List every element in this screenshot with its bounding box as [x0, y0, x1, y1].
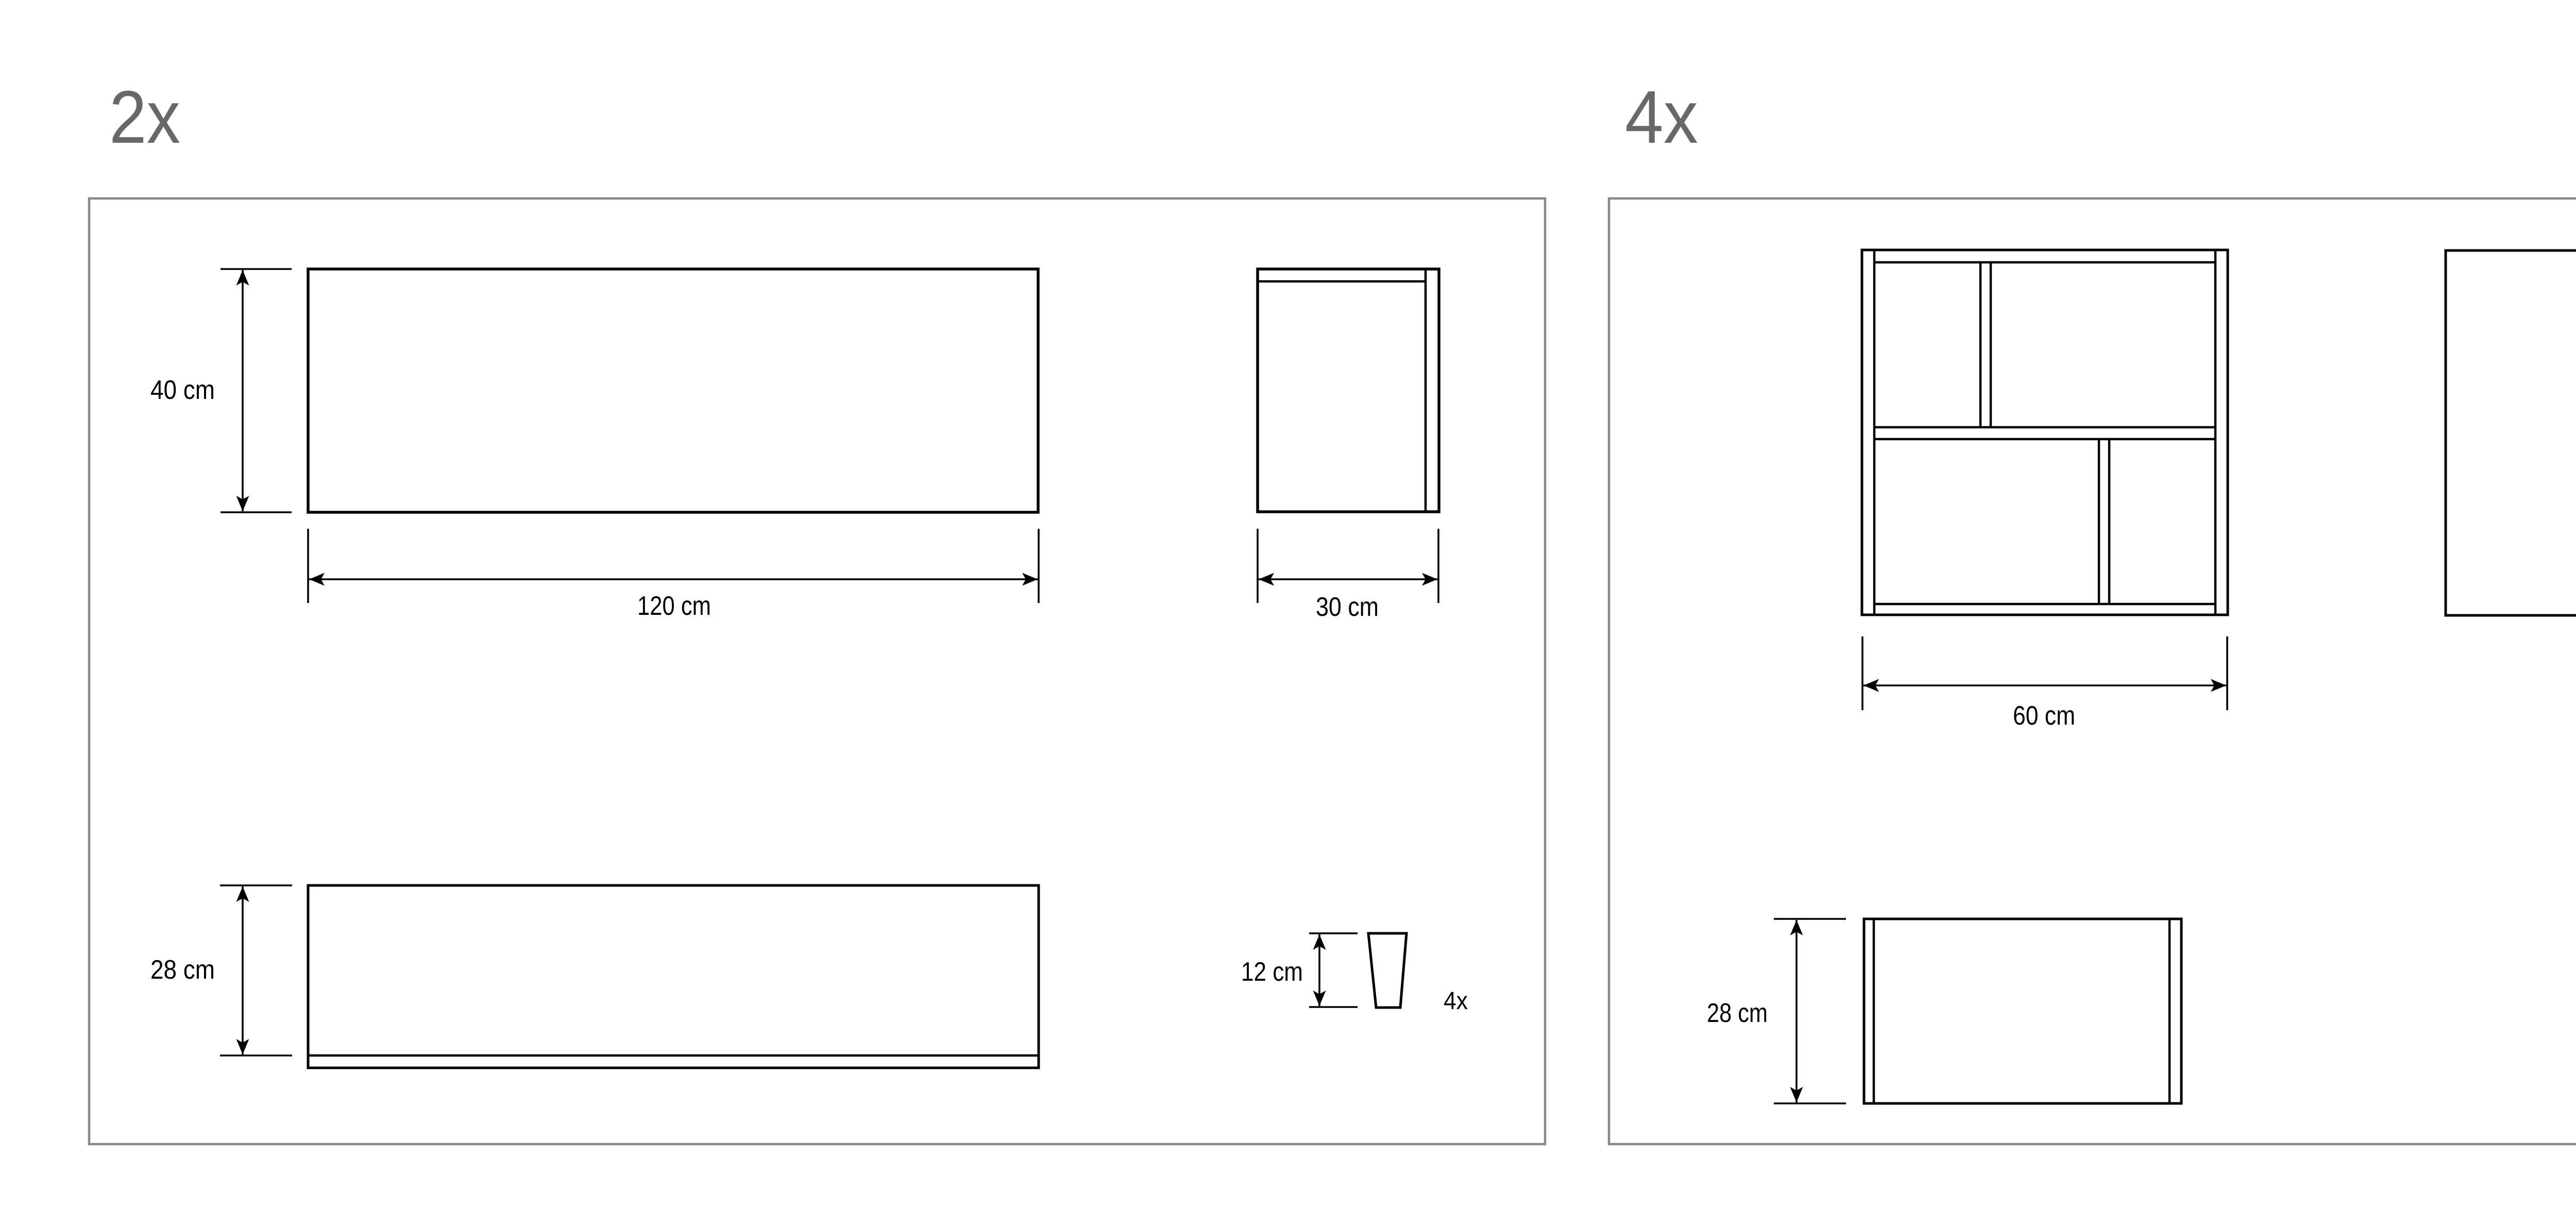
- svg-text:40 cm: 40 cm: [150, 375, 215, 405]
- svg-text:60 cm: 60 cm: [2013, 701, 2075, 731]
- svg-text:4x: 4x: [1625, 75, 1698, 159]
- svg-text:30 cm: 30 cm: [1316, 592, 1379, 622]
- svg-text:120 cm: 120 cm: [637, 591, 711, 621]
- svg-text:4x: 4x: [1444, 987, 1468, 1015]
- svg-text:28 cm: 28 cm: [1707, 998, 1768, 1028]
- svg-text:2x: 2x: [109, 75, 180, 159]
- svg-text:12 cm: 12 cm: [1241, 957, 1303, 987]
- svg-text:28 cm: 28 cm: [150, 955, 215, 985]
